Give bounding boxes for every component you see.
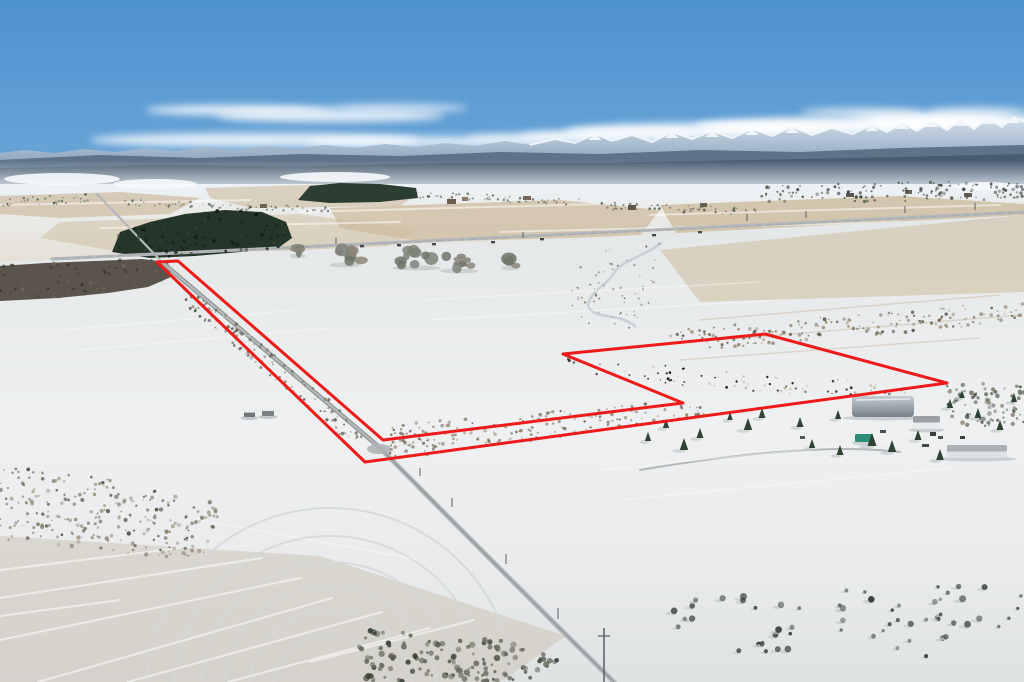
vehicle-on-road [432, 243, 436, 245]
scene-svg [0, 0, 1024, 682]
bare-tree-clump [452, 262, 462, 273]
farm-machinery [800, 436, 805, 439]
aerial-photo [0, 0, 1024, 682]
vehicle-on-road [397, 244, 401, 246]
snow-lake-patch [4, 173, 120, 185]
vehicle-on-road [698, 231, 702, 233]
distant-farmstead [447, 199, 456, 204]
bare-tree-clump [466, 262, 475, 268]
bare-tree-clump [344, 256, 354, 266]
farm-machinery [880, 430, 886, 433]
bare-tree-clump [354, 257, 368, 265]
distant-farmstead [462, 197, 468, 201]
distant-farmstead [523, 196, 531, 200]
farm-machinery [960, 436, 965, 439]
bare-tree-clump [421, 251, 429, 259]
snow-lake-patch [113, 179, 197, 189]
vehicle-on-road [491, 241, 495, 243]
bare-tree-clump [453, 257, 466, 262]
vehicle-on-road [540, 238, 544, 240]
bare-tree-clump [290, 247, 305, 253]
snow-lake-patch [280, 172, 390, 182]
farm-machinery [922, 444, 929, 447]
vehicle-on-road [652, 234, 656, 236]
bare-tree-clump [397, 260, 406, 269]
road-junction [367, 444, 391, 454]
vehicle-on-road [360, 245, 364, 247]
bare-tree-clump [410, 260, 420, 268]
bare-tree-clump [442, 252, 452, 261]
farm-machinery [938, 436, 943, 439]
bare-tree-clump [501, 252, 517, 265]
bare-tree-clump [335, 243, 348, 256]
farm-machinery [930, 432, 936, 436]
bare-tree-clump [402, 246, 414, 255]
